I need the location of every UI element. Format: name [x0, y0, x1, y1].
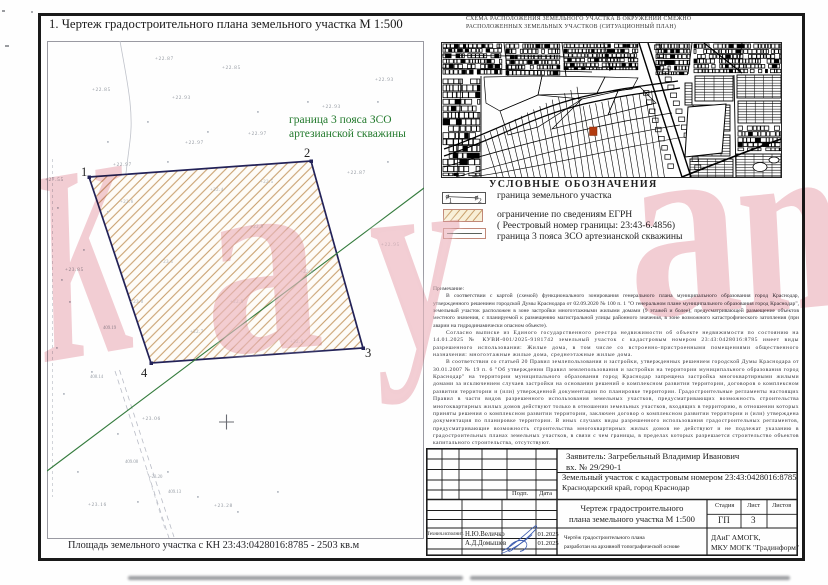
- svg-text:1: 1: [449, 196, 453, 203]
- svg-text:2: 2: [478, 196, 482, 203]
